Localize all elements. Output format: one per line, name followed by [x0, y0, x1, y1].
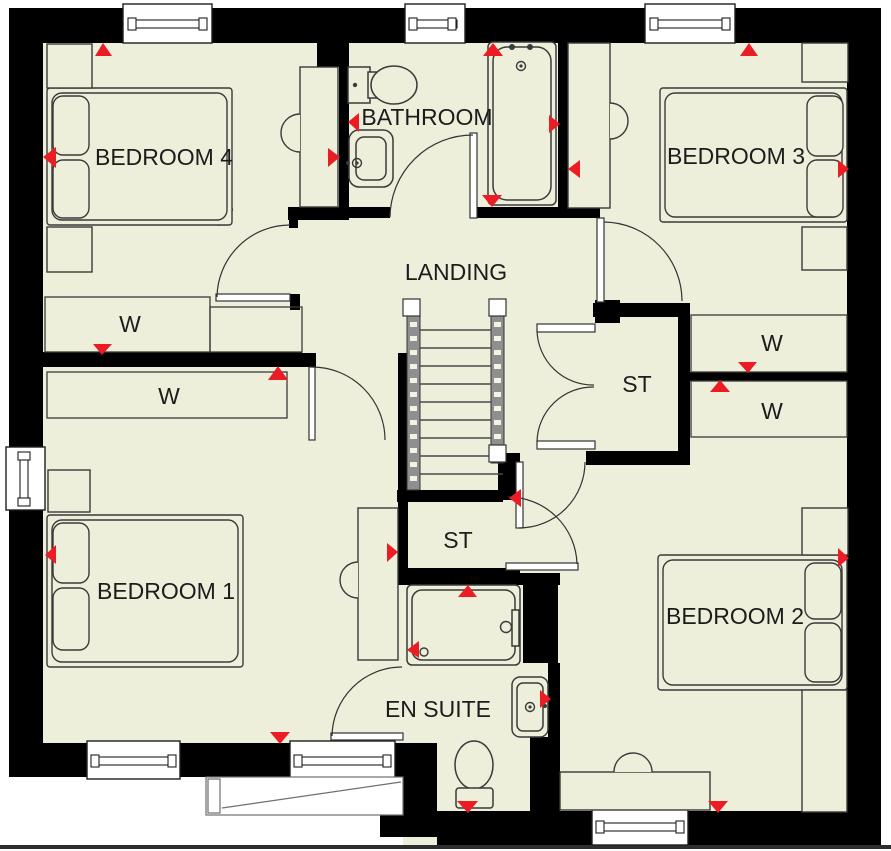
- wall-segment: [288, 207, 349, 220]
- pillow-icon: [53, 160, 89, 218]
- wall-segment: [9, 743, 87, 777]
- newel-post: [489, 445, 506, 462]
- window-bathroom-top: [405, 4, 465, 43]
- desk-icon: [358, 508, 398, 660]
- toilet-icon: [455, 741, 493, 808]
- wall-segment: [688, 811, 847, 845]
- canopy-roof-outline: [206, 777, 403, 815]
- room-label-storage-lower: ST: [443, 527, 472, 553]
- wall-segment: [690, 372, 847, 381]
- wall-segment: [43, 352, 302, 367]
- room-label-bedroom1: BEDROOM 1: [97, 578, 235, 604]
- newel-post: [403, 299, 420, 316]
- bedside-table-icon: [47, 227, 92, 272]
- window-bedroom1-bottom-left: [87, 741, 180, 779]
- bedside-table-icon: [802, 43, 848, 82]
- pillow-icon: [805, 623, 841, 682]
- wall-segment: [473, 207, 560, 218]
- ground-line: [0, 845, 891, 849]
- wall-segment: [397, 568, 520, 585]
- sink-icon: [512, 677, 548, 737]
- window-bedroom4-top: [123, 4, 212, 43]
- wall-segment: [595, 300, 620, 323]
- window-bedroom2-bottom: [592, 806, 688, 845]
- bedside-table-icon: [47, 44, 92, 88]
- wall-segment: [302, 353, 316, 367]
- wall-segment: [548, 663, 560, 737]
- room-label-bathroom: BATHROOM: [361, 104, 492, 130]
- wall-segment: [289, 219, 298, 228]
- room-label-wardrobe-bedroom3: W: [761, 330, 783, 356]
- pillow-icon: [807, 96, 843, 156]
- window-bedroom1-bottom-right: [290, 741, 395, 779]
- window-bedroom1-left: [6, 447, 45, 510]
- wall-segment: [465, 8, 645, 43]
- room-label-bedroom3: BEDROOM 3: [667, 143, 805, 169]
- wall-segment: [678, 317, 690, 453]
- pillow-icon: [807, 160, 843, 217]
- bathtub-icon: [488, 42, 556, 205]
- wall-segment: [847, 8, 881, 845]
- bedside-table-icon: [48, 470, 90, 512]
- wall-segment: [212, 8, 405, 43]
- room-label-landing: LANDING: [405, 259, 507, 285]
- wall-segment: [9, 510, 43, 777]
- wall-segment: [180, 743, 290, 777]
- floor-plan-page: BEDROOM 4 BATHROOM BEDROOM 3 LANDING ST …: [0, 0, 891, 851]
- floor-plan-drawing: BEDROOM 4 BATHROOM BEDROOM 3 LANDING ST …: [0, 0, 891, 851]
- room-label-bedroom4: BEDROOM 4: [95, 144, 233, 170]
- room-label-ensuite: EN SUITE: [385, 696, 491, 722]
- wall-segment: [437, 811, 592, 845]
- toilet-icon: [348, 66, 417, 104]
- wall-segment: [586, 451, 690, 465]
- desk-icon: [300, 67, 338, 207]
- room-label-wardrobe-bedroom4: W: [119, 311, 141, 337]
- window-bedroom3-top: [645, 4, 735, 43]
- room-label-wardrobe-bedroom1: W: [158, 383, 180, 409]
- wall-segment: [530, 737, 560, 813]
- pillow-icon: [53, 96, 89, 155]
- wall-segment: [9, 8, 43, 447]
- wall-segment: [397, 490, 503, 502]
- wall-segment: [520, 573, 560, 585]
- pillow-icon: [805, 563, 841, 619]
- pillow-icon: [53, 588, 89, 650]
- bedside-table-icon: [802, 227, 847, 270]
- room-label-bedroom2: BEDROOM 2: [666, 603, 804, 629]
- newel-post: [489, 299, 506, 316]
- pillow-icon: [53, 523, 89, 583]
- dresser-icon: [568, 43, 610, 208]
- wall-segment: [339, 30, 349, 207]
- wall-segment: [523, 585, 558, 663]
- sink-icon: [346, 130, 393, 187]
- room-label-storage-upper: ST: [622, 371, 651, 397]
- tall-unit-icon: [802, 690, 847, 812]
- bedside-table-icon: [802, 508, 848, 555]
- desk-icon: [560, 772, 710, 810]
- room-label-wardrobe-bedroom2: W: [761, 398, 783, 424]
